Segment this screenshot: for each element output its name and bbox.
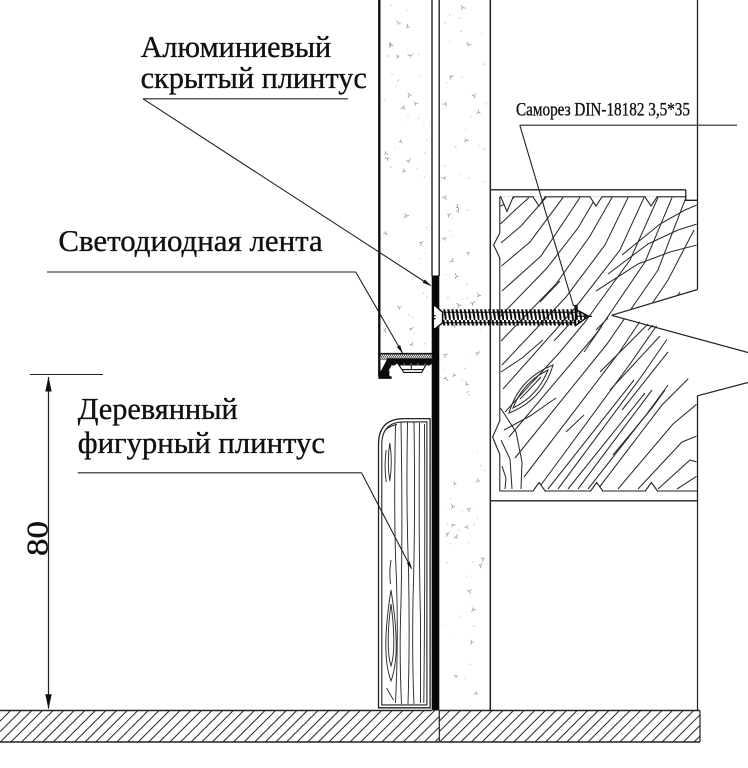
svg-text:Алюминиевый: Алюминиевый [141, 29, 332, 64]
svg-text:Светодиодная лента: Светодиодная лента [58, 223, 323, 258]
svg-text:Деревянный: Деревянный [78, 391, 238, 426]
svg-text:80: 80 [19, 521, 54, 556]
svg-text:фигурный плинтус: фигурный плинтус [78, 425, 325, 460]
svg-text:скрытый плинтус: скрытый плинтус [141, 60, 367, 95]
svg-text:Саморез DIN-18182 3,5*35: Саморез DIN-18182 3,5*35 [516, 100, 690, 121]
